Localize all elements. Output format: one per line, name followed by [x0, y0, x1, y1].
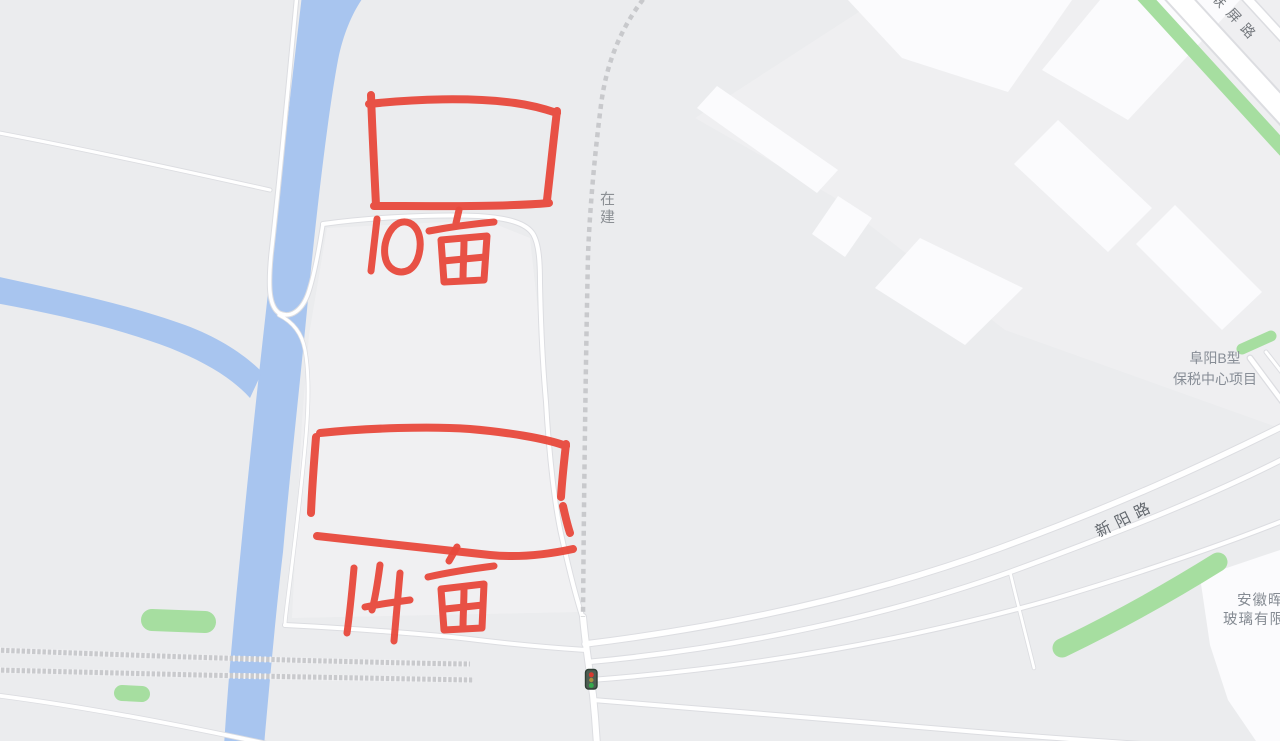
project-label-line2: 保税中心项目: [1140, 369, 1280, 390]
company-label-line2: 玻璃有限: [1223, 611, 1280, 630]
company-label-line1: 安徽晖: [1237, 592, 1280, 611]
traffic-light-icon: [586, 670, 598, 690]
map-canvas[interactable]: 在建 联屏路 阜阳B型 保税中心项目 新阳路 安徽晖 玻璃有限: [0, 0, 1280, 741]
company-building: [1200, 550, 1280, 741]
map-base-layer: [0, 0, 1280, 741]
under-construction-label: 在建: [597, 191, 616, 227]
project-label-line1: 阜阳B型: [1140, 348, 1280, 369]
project-label: 阜阳B型 保税中心项目: [1140, 348, 1280, 390]
under-construction-road: [583, 0, 649, 617]
tributary-stream: [0, 276, 262, 398]
